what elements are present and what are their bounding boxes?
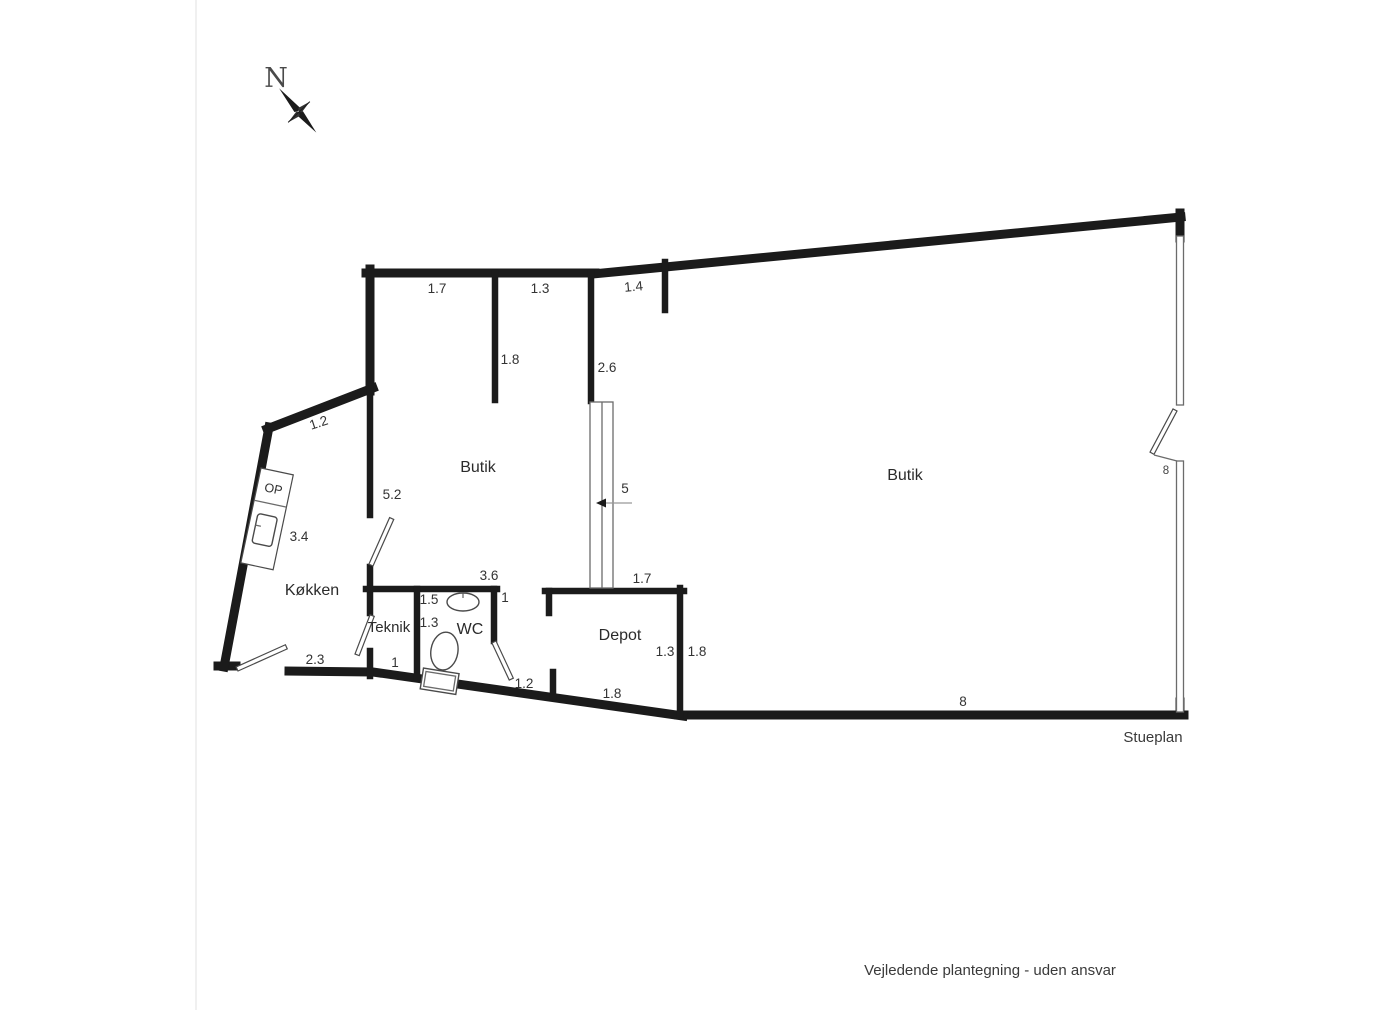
doors [236, 409, 1177, 680]
measurement-top-wall-right: 1.3 [531, 281, 550, 296]
plan-name-label: Stueplan [1123, 729, 1182, 746]
measurement-butik-divider: 1.8 [501, 352, 520, 367]
interior-walls [366, 262, 684, 716]
floor-plan-page: N [0, 0, 1400, 1010]
measurement-counter: 3.4 [290, 529, 309, 544]
measurement-bottom-wall: 8 [959, 694, 967, 709]
measurement-wc-left-lower: 1.3 [420, 615, 439, 630]
room-label-butik-left: Butik [460, 459, 497, 476]
measurement-teknik-bottom: 1 [391, 655, 399, 670]
measurement-depot-top: 1.7 [633, 571, 652, 586]
window-right-upper [1177, 236, 1184, 405]
measurement-wc-top-right: 1 [501, 590, 509, 605]
wall-top-angled [593, 217, 1181, 274]
room-label-koekken: Køkken [285, 582, 339, 599]
koekken-butik-door-leaf [369, 518, 394, 566]
right-facade [1177, 236, 1184, 712]
measurement-top-wall-left: 1.7 [428, 281, 447, 296]
measurement-depot-right-outer: 1.8 [688, 644, 707, 659]
labels: Butik Butik Køkken Teknik WC Depot 1.7 1… [285, 278, 1183, 979]
floor-plan-svg: N [0, 0, 1400, 1010]
facade-door-leaf [1150, 409, 1177, 454]
room-label-butik-right: Butik [887, 467, 924, 484]
measurement-right-wall: 8 [1163, 465, 1169, 477]
window-right-lower [1177, 461, 1184, 712]
room-label-depot: Depot [599, 627, 642, 644]
measurement-stair-wall: 2.6 [598, 360, 617, 375]
disclaimer-label: Vejledende plantegning - uden ansvar [864, 962, 1116, 979]
wc-door-leaf [492, 641, 513, 680]
measurement-wc-left-upper: 1.5 [420, 592, 439, 607]
measurement-stairs-width: 5 [621, 481, 629, 496]
entrance-door-leaf [236, 645, 287, 671]
measurement-depot-bottom: 1.8 [603, 686, 622, 701]
measurement-top-wall-angled: 1.4 [624, 278, 645, 295]
measurement-koekken-bottom: 2.3 [306, 652, 325, 667]
compass: N [264, 63, 328, 142]
measurement-wc-top: 3.6 [480, 568, 499, 583]
measurement-wc-door-bottom: 1.2 [515, 676, 534, 691]
measurement-depot-right-inner: 1.3 [656, 644, 675, 659]
compass-north-label: N [264, 63, 288, 94]
measurement-koekken-butik-wall: 5.2 [383, 487, 402, 502]
wall-bottom-slanted [289, 671, 683, 716]
wc-fixtures [420, 593, 479, 694]
room-label-teknik: Teknik [368, 619, 411, 636]
room-label-wc: WC [457, 621, 484, 638]
facade-door-line [1154, 455, 1177, 461]
